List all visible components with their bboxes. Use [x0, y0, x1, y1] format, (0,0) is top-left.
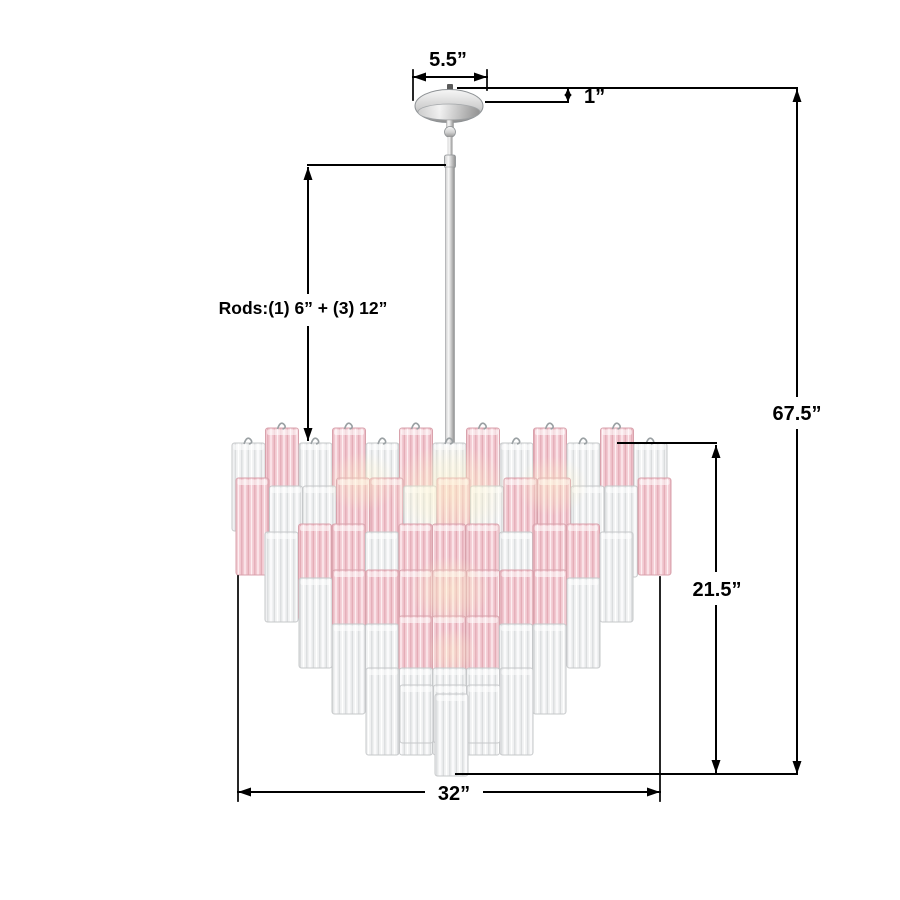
tube-top-highlight	[334, 626, 364, 632]
tube-top-highlight	[401, 526, 431, 532]
tube-top-highlight	[569, 445, 599, 451]
tube-top-highlight	[334, 430, 364, 436]
tube-top-highlight	[468, 430, 498, 436]
bulb-glow	[516, 456, 588, 516]
tube-top-highlight	[435, 687, 465, 693]
pink-glass-tube	[638, 478, 671, 575]
tube-top-highlight	[606, 488, 636, 494]
rods-dimension: Rods:(1) 6” + (3) 12”	[219, 165, 445, 441]
tube-top-highlight	[502, 572, 532, 578]
arrowhead-left-icon	[238, 788, 251, 797]
arrowhead-left-icon	[413, 73, 426, 82]
tube-top-highlight	[234, 445, 264, 451]
pink-glass-tube	[236, 478, 269, 575]
tube-top-highlight	[368, 572, 398, 578]
tube-top-highlight	[435, 670, 465, 676]
rods-note-label: Rods:(1) 6” + (3) 12”	[219, 298, 388, 318]
arrowhead-down-icon	[304, 428, 313, 441]
canopy-and-rod	[415, 84, 483, 444]
tube-top-highlight	[367, 534, 397, 540]
tube-top-highlight	[267, 534, 297, 540]
arrowhead-right-icon	[474, 73, 487, 82]
hang-straight-ball	[445, 127, 456, 138]
arrowhead-up-icon	[304, 167, 313, 180]
chandelier-figure	[232, 84, 671, 776]
arrowhead-down-icon	[565, 94, 572, 102]
tube-top-highlight	[334, 526, 364, 532]
tube-top-highlight	[401, 670, 431, 676]
clear-glass-tube	[600, 532, 633, 622]
tube-top-highlight	[367, 626, 397, 632]
arrowhead-down-icon	[712, 760, 721, 773]
chandelier-dimension-diagram: 5.5” 1” 67.5” 21.5”	[0, 0, 900, 900]
stem-wire	[448, 137, 453, 156]
tube-top-highlight	[501, 534, 531, 540]
tube-top-highlight	[401, 618, 431, 624]
tube-top-highlight	[334, 572, 364, 578]
dimension-diagram-page: 5.5” 1” 67.5” 21.5”	[0, 0, 900, 900]
tube-top-highlight	[238, 480, 268, 486]
tube-top-highlight	[468, 670, 498, 676]
canopy-rim	[418, 104, 480, 120]
clear-glass-tube	[533, 624, 566, 714]
overall-height-dimension: 67.5”	[773, 89, 822, 774]
tube-top-highlight	[535, 572, 565, 578]
tube-top-highlight	[434, 526, 464, 532]
tube-top-highlight	[640, 480, 670, 486]
tube-top-highlight	[535, 430, 565, 436]
tube-top-highlight	[271, 488, 301, 494]
arrowhead-up-icon	[712, 445, 721, 458]
clear-glass-tube	[400, 685, 433, 743]
bulb-glow	[326, 452, 398, 512]
tube-top-highlight	[502, 445, 532, 451]
tube-top-highlight	[602, 430, 632, 436]
clear-glass-tube	[332, 624, 365, 714]
tube-top-highlight	[402, 687, 432, 693]
tube-top-highlight	[636, 445, 666, 451]
arrowhead-down-icon	[793, 761, 802, 774]
clear-glass-tube	[265, 532, 298, 622]
tube-top-highlight	[535, 526, 565, 532]
fixture-width-label: 32”	[438, 783, 470, 805]
clear-glass-tube	[467, 685, 500, 743]
tube-top-highlight	[535, 626, 565, 632]
arrowhead-right-icon	[647, 788, 660, 797]
clear-glass-tube	[500, 668, 533, 755]
tube-top-highlight	[501, 626, 531, 632]
canopy-width-label: 5.5”	[429, 49, 467, 71]
clear-glass-tube	[435, 694, 468, 776]
tube-top-highlight	[267, 430, 297, 436]
tube-top-highlight	[468, 526, 498, 532]
tube-top-highlight	[437, 696, 467, 702]
tube-tiers-front	[366, 668, 533, 776]
fixture-height-label: 21.5”	[693, 579, 742, 601]
clear-glass-tube	[299, 578, 332, 668]
bulb-glow	[410, 556, 490, 624]
rod-coupler	[445, 155, 456, 168]
arrowhead-up-icon	[793, 89, 802, 102]
tube-top-highlight	[569, 580, 599, 586]
tube-top-highlight	[401, 430, 431, 436]
canopy-height-label: 1”	[584, 86, 605, 108]
overall-height-label: 67.5”	[773, 403, 822, 425]
tube-top-highlight	[568, 526, 598, 532]
tube-top-highlight	[502, 670, 532, 676]
tube-top-highlight	[301, 445, 331, 451]
tube-top-highlight	[368, 670, 398, 676]
tube-top-highlight	[300, 526, 330, 532]
tube-tier-8	[435, 694, 468, 776]
canopy-height-dimension: 1”	[458, 86, 797, 108]
tube-top-highlight	[368, 445, 398, 451]
tube-top-highlight	[469, 687, 499, 693]
tube-top-highlight	[602, 534, 632, 540]
clear-glass-tube	[366, 668, 399, 755]
downrod	[446, 167, 455, 444]
clear-glass-tube	[567, 578, 600, 668]
tube-top-highlight	[301, 580, 331, 586]
